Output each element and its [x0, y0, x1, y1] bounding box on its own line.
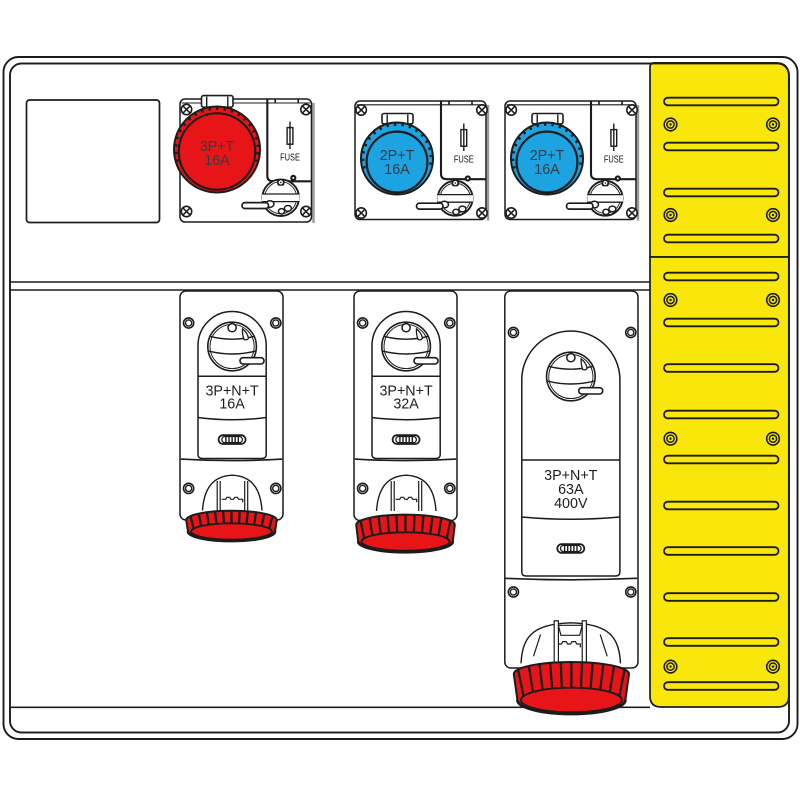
svg-text:FUSE: FUSE	[280, 153, 300, 164]
svg-text:FUSE: FUSE	[604, 155, 624, 166]
svg-text:16A: 16A	[204, 153, 230, 169]
svg-text:16A: 16A	[219, 397, 245, 413]
svg-text:FUSE: FUSE	[454, 155, 474, 166]
svg-text:400V: 400V	[554, 496, 588, 512]
svg-text:32A: 32A	[393, 397, 419, 413]
svg-text:16A: 16A	[534, 162, 560, 178]
svg-text:16A: 16A	[384, 162, 410, 178]
